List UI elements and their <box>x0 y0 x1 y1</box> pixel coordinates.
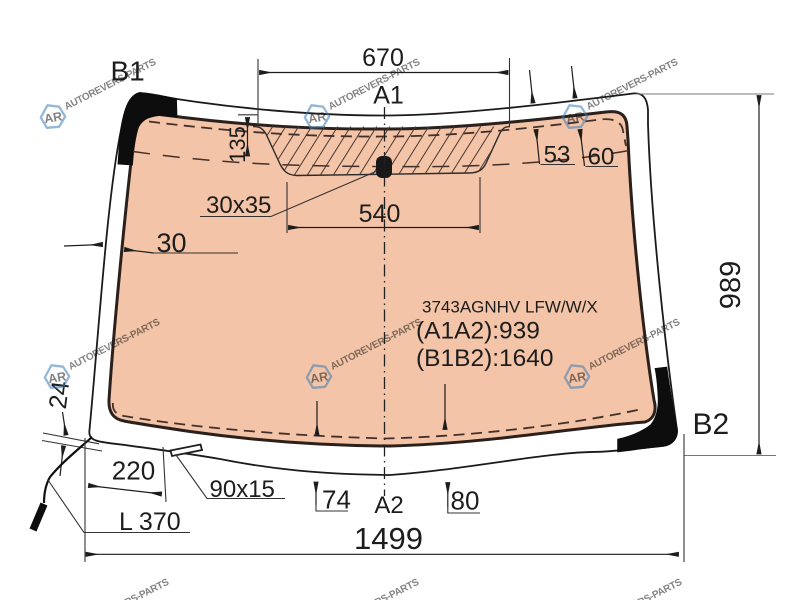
svg-text:74: 74 <box>322 485 351 515</box>
svg-text:1499: 1499 <box>354 521 423 556</box>
svg-text:30x35: 30x35 <box>206 192 271 219</box>
svg-text:60: 60 <box>588 144 615 171</box>
svg-text:989: 989 <box>715 261 747 309</box>
svg-text:135: 135 <box>225 126 250 163</box>
svg-text:L 370: L 370 <box>119 508 181 536</box>
svg-text:30: 30 <box>156 228 186 258</box>
svg-text:53: 53 <box>544 142 571 169</box>
svg-text:A2: A2 <box>374 492 403 519</box>
svg-text:220: 220 <box>112 456 155 486</box>
svg-text:(A1A2):939: (A1A2):939 <box>416 318 540 345</box>
svg-text:540: 540 <box>359 200 401 228</box>
svg-text:80: 80 <box>451 486 480 516</box>
svg-text:(B1B2):1640: (B1B2):1640 <box>416 345 554 372</box>
svg-text:B2: B2 <box>693 408 730 441</box>
svg-text:3743AGNHV LFW/W/X: 3743AGNHV LFW/W/X <box>422 298 598 317</box>
svg-text:90x15: 90x15 <box>210 476 275 503</box>
